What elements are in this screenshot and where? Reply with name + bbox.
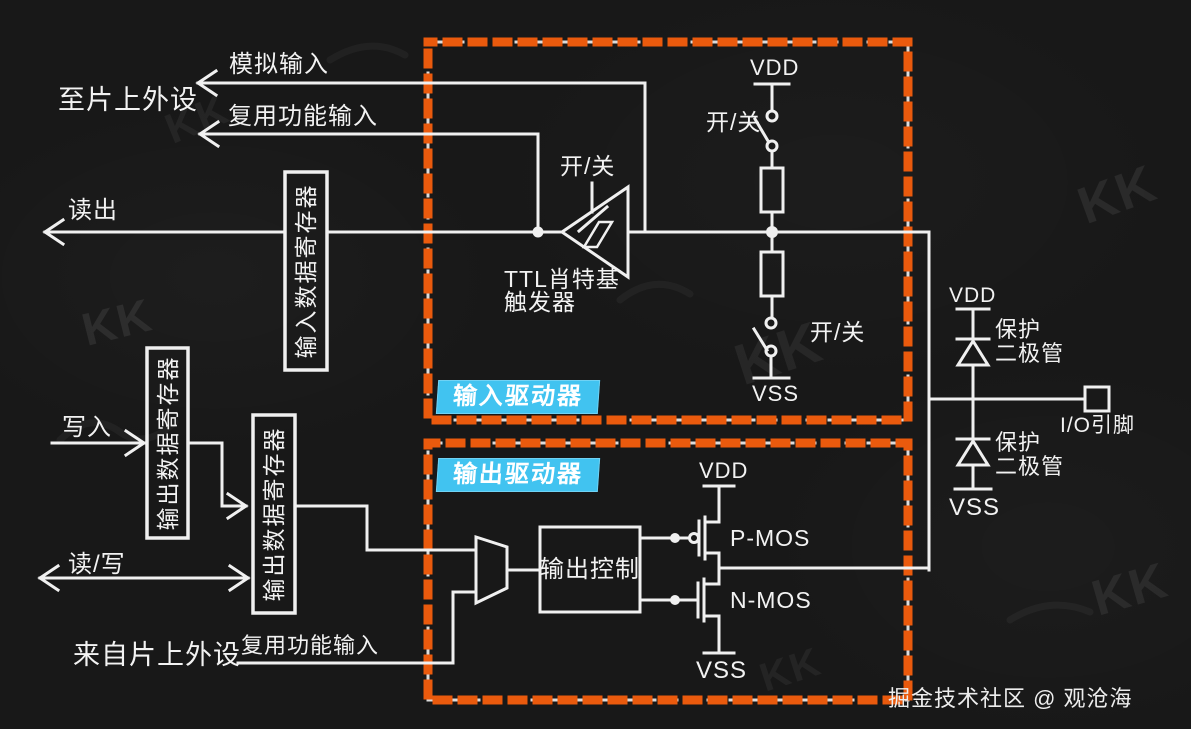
io-pin-label: I/O引脚 [1060,414,1135,437]
junction-dot [533,227,544,238]
junction-dot [670,533,680,543]
pullup-vdd-label: VDD [750,56,799,80]
pulldown-resistor [761,252,783,296]
readout-label: 读出 [68,198,118,224]
read-write-label: 读/写 [68,552,126,578]
output-data-register-upper-label: 输出数据寄存器 [153,333,183,553]
nmos-symbol [640,568,734,653]
schmitt-trigger-label-line1: TTL肖特基 [504,268,620,291]
junction-dot [670,595,680,605]
protection-diode-lower-label: 保护 二极管 [995,431,1064,479]
nmos-label: N-MOS [730,588,812,613]
alt-func-input-top-label: 复用功能输入 [228,104,378,130]
mux-symbol [476,537,507,603]
hysteresis-glyph [584,222,612,247]
schmitt-trigger-symbol [562,183,628,277]
switch-blade [754,329,767,350]
schmitt-trigger-label: TTL肖特基 触发器 [504,268,620,314]
analog-input-label: 模拟输入 [229,52,329,78]
switch-contact [766,318,776,328]
switch-contact [767,111,777,121]
protection-diode-lower [958,441,988,465]
output-driver-tag: 输出驱动器 [436,458,600,492]
schmitt-trigger-label-line2: 触发器 [504,291,620,314]
pullup-switch-label: 开/关 [706,110,761,135]
io-pin-pad [1085,387,1109,411]
from-peripheral-label: 来自片上外设 [73,641,241,671]
input-data-register-label: 输入数据寄存器 [291,161,321,381]
analog-input-line [198,71,645,232]
diode-vdd-label: VDD [949,284,996,307]
pulldown-vss-label: VSS [752,382,799,406]
output-control-label: 输出控制 [540,557,640,583]
protection-diode-upper-line1: 保护 [995,318,1064,342]
drain-lead [704,568,719,584]
protection-diode-lower-line2: 二极管 [995,455,1064,479]
protection-diode-lower-line1: 保护 [995,431,1064,455]
diagram-canvas: KK KK KK KK KK KK [0,0,1191,729]
input-driver-tag: 输入驱动器 [436,380,600,414]
drain-lead [705,553,719,568]
protection-diode-upper [958,341,988,365]
register-to-mux-line [295,506,476,550]
protection-diode-upper-label: 保护 二极管 [995,318,1064,366]
pmos-label: P-MOS [730,526,810,551]
mos-vss-label: VSS [696,658,747,684]
write-label: 写入 [62,415,112,441]
alt-func-input-line [200,122,538,232]
pmos-symbol [640,486,734,568]
register-to-register-line [188,443,246,518]
schmitt-switch-label: 开/关 [560,154,615,179]
pmos-gate-bubble [690,534,699,543]
pulldown-switch-label: 开/关 [810,320,865,345]
pullup-resistor [761,168,783,212]
diode-vss-label: VSS [949,495,1000,521]
background-scribbles [60,46,1090,620]
mos-vdd-label: VDD [699,459,748,483]
source-lead [704,616,719,651]
protection-diode-upper-line2: 二极管 [995,342,1064,366]
to-peripheral-label: 至片上外设 [58,86,198,116]
source-lead [705,486,719,522]
alt-func-input-bottom-label: 复用功能输入 [241,634,379,658]
credit-watermark: 掘金技术社区 @ 观沧海 [888,681,1133,713]
output-data-register-lower-label: 输出数据寄存器 [259,404,289,624]
